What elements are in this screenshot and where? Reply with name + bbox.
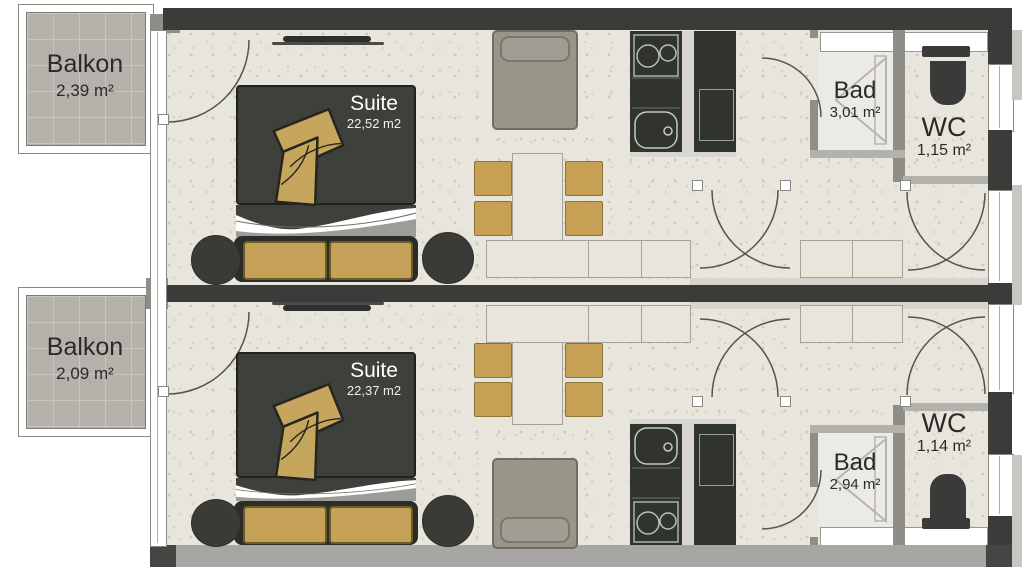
cooktop-icon <box>630 31 682 152</box>
armchair-backrest <box>500 517 570 543</box>
bed-bottom: Suite 22,37 m2 <box>234 352 418 545</box>
dining-chair <box>565 382 603 417</box>
dining-chair <box>565 343 603 378</box>
door-arc <box>907 192 985 270</box>
dining-chair <box>565 161 603 196</box>
door-arc <box>712 190 790 268</box>
toilet-icon <box>922 518 970 529</box>
room-area: 3,01 m² <box>812 105 898 122</box>
room-name: Suite <box>336 91 412 116</box>
suite-bottom-label: Suite 22,37 m2 <box>336 358 412 399</box>
sideboard <box>486 240 691 278</box>
dining-chair <box>474 343 512 378</box>
door-arc <box>908 317 985 394</box>
room-area: 2,94 m² <box>812 477 898 494</box>
side-table <box>422 495 474 547</box>
room-name: Balkon <box>20 50 150 78</box>
door-frame <box>900 180 911 191</box>
door-frame <box>780 180 791 191</box>
bed-pillow <box>243 241 327 280</box>
hall-cabinet <box>800 305 903 343</box>
sink-icon <box>635 428 677 464</box>
side-table <box>191 235 241 285</box>
tv-stand <box>272 302 384 305</box>
door-arc <box>907 317 985 395</box>
bed-pillow <box>329 506 413 544</box>
balcony-bottom-label: Balkon 2,09 m² <box>20 333 150 383</box>
armchair-backrest <box>500 36 570 62</box>
room-name: WC <box>900 408 988 438</box>
bed-pillow <box>243 506 327 544</box>
room-area: 2,09 m² <box>20 364 150 383</box>
room-area: 22,52 m2 <box>336 116 412 132</box>
bath-bottom-label: Bad 2,94 m² <box>812 450 898 494</box>
bed-top: Suite 22,52 m2 <box>234 85 418 282</box>
tv-stand <box>272 42 384 45</box>
suite-top-label: Suite 22,52 m2 <box>336 91 412 132</box>
room-name: Bad <box>812 450 898 477</box>
dining-chair <box>474 382 512 417</box>
toilet-bowl <box>928 472 968 520</box>
kitchen-divider <box>682 424 694 545</box>
door-arc <box>700 190 778 268</box>
door-frame <box>692 396 703 407</box>
room-area: 22,37 m2 <box>336 383 412 399</box>
cooktop-icon <box>630 424 682 545</box>
hall-cabinet <box>800 240 903 278</box>
dining-table <box>512 341 563 425</box>
floor-plan: Suite 22,52 m2 <box>0 0 1024 573</box>
room-area: 1,14 m² <box>900 438 988 456</box>
wc-top-label: WC 1,15 m² <box>900 112 988 160</box>
door-frame <box>900 396 911 407</box>
toilet-bowl <box>928 59 968 107</box>
door-frame <box>692 180 703 191</box>
bath-top-label: Bad 3,01 m² <box>812 78 898 122</box>
sideboard <box>486 305 691 343</box>
balcony-top-label: Balkon 2,39 m² <box>20 50 150 100</box>
door-arc <box>908 193 985 270</box>
sink-icon <box>635 112 677 148</box>
door-arc <box>700 319 778 397</box>
armchair-icon <box>492 458 578 549</box>
kitchen-counter-edge <box>630 152 736 157</box>
room-name: Bad <box>812 78 898 105</box>
armchair-icon <box>492 30 578 130</box>
dining-chair <box>565 201 603 236</box>
kitchen-divider <box>682 31 694 152</box>
room-name: WC <box>900 112 988 142</box>
room-area: 1,15 m² <box>900 142 988 160</box>
door-arc <box>712 319 790 397</box>
door-frame <box>158 114 169 125</box>
dining-table <box>512 153 563 242</box>
room-name: Balkon <box>20 333 150 361</box>
wc-bottom-label: WC 1,14 m² <box>900 408 988 456</box>
toilet-icon <box>922 46 970 57</box>
bed-pillow <box>329 241 413 280</box>
door-frame <box>780 396 791 407</box>
fridge-icon <box>699 434 734 486</box>
fridge-icon <box>699 89 734 141</box>
dining-chair <box>474 201 512 236</box>
room-area: 2,39 m² <box>20 81 150 100</box>
side-table <box>191 499 241 547</box>
side-table <box>422 232 474 284</box>
dining-chair <box>474 161 512 196</box>
room-name: Suite <box>336 358 412 383</box>
tv-icon <box>283 305 371 311</box>
door-frame <box>158 386 169 397</box>
